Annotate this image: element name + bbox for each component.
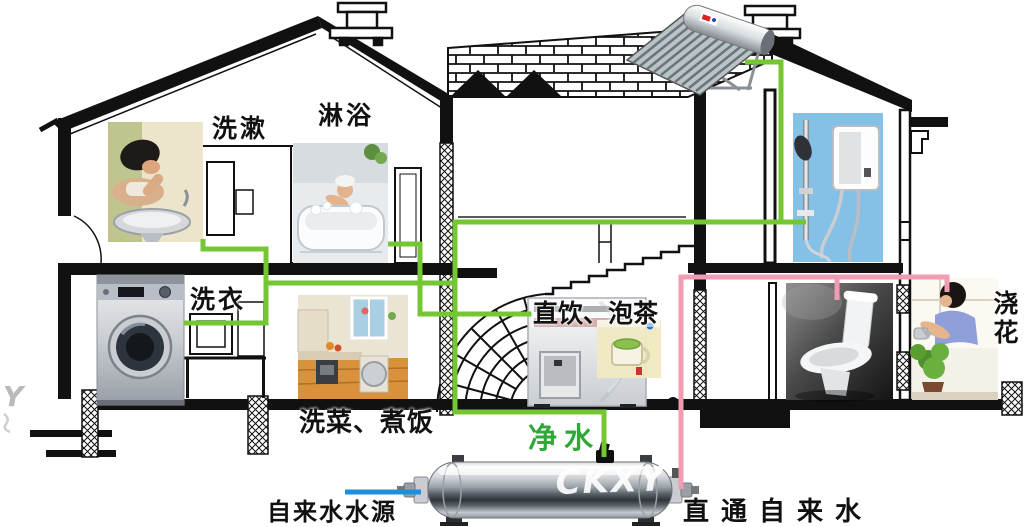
purified-water-pipes <box>184 62 806 457</box>
label-drinking-tea: 直饮、泡茶 <box>531 300 660 327</box>
pipe-direct-tap-main <box>681 277 947 489</box>
label-kitchen-cooking: 洗菜、煮饭 <box>299 410 434 436</box>
pipe-floor-joint <box>667 397 679 409</box>
label-watering-flowers: 浇花 <box>992 290 1017 348</box>
pipe-main-purified <box>455 62 781 457</box>
house-water-diagram: CKXY Y 洗漱 淋浴 洗衣 洗菜、煮饭 直饮、泡茶 净水 自来水水源 直通自… <box>0 0 1024 527</box>
label-direct-tap-water: 直通自来水 <box>683 499 873 525</box>
label-shower: 淋浴 <box>318 103 374 128</box>
label-purified-water: 净水 <box>528 424 600 453</box>
label-tap-water-source: 自来水水源 <box>267 500 397 524</box>
pipes-layer <box>0 0 1024 527</box>
pipe-bath-dispenser <box>388 244 532 314</box>
label-laundry: 洗衣 <box>190 287 246 312</box>
label-wash-up: 洗漱 <box>212 116 268 141</box>
tap-water-pipes <box>681 277 947 489</box>
